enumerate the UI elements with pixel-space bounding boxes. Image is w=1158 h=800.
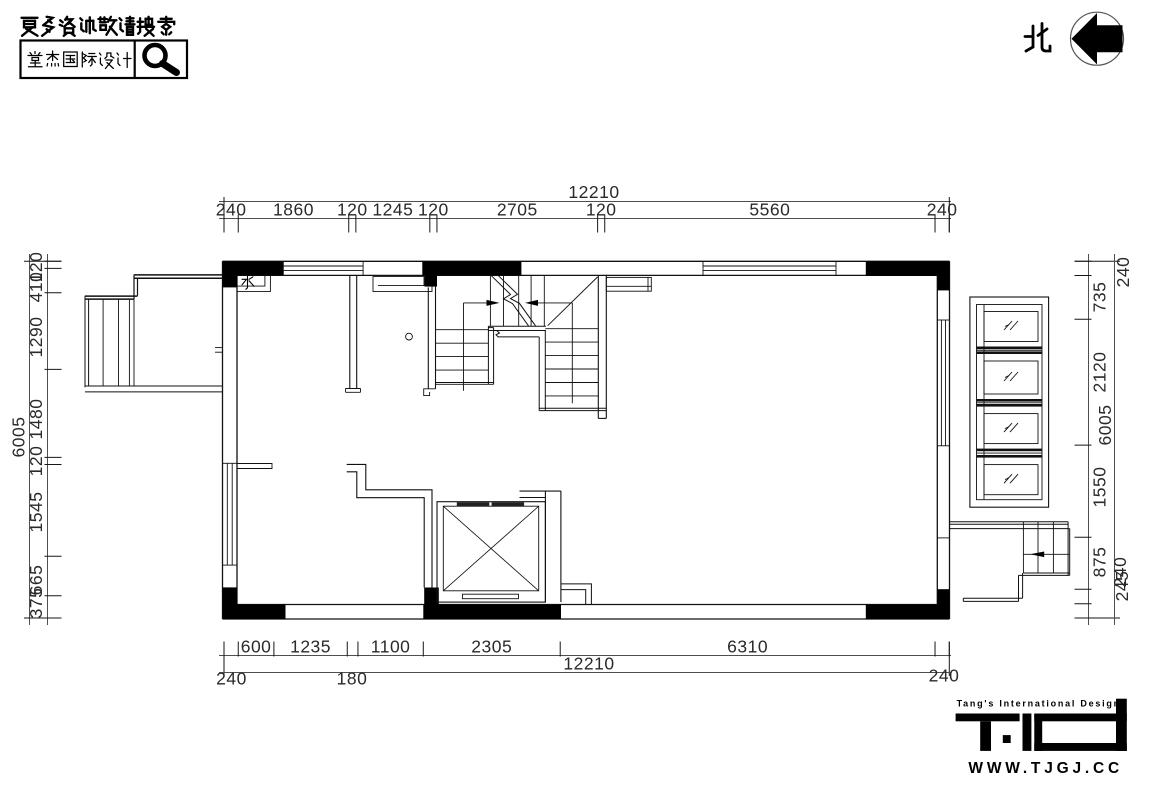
svg-text:875: 875 bbox=[1090, 547, 1110, 578]
svg-text:2705: 2705 bbox=[497, 200, 538, 220]
svg-text:240: 240 bbox=[1113, 257, 1133, 288]
svg-text:120: 120 bbox=[418, 200, 449, 220]
svg-text:1290: 1290 bbox=[26, 317, 46, 358]
svg-text:240: 240 bbox=[927, 200, 958, 220]
svg-text:600: 600 bbox=[241, 637, 272, 657]
svg-text:180: 180 bbox=[337, 669, 368, 689]
svg-text:735: 735 bbox=[1090, 282, 1110, 313]
svg-text:1235: 1235 bbox=[290, 637, 331, 657]
svg-text:WWW.TJGJ.CC: WWW.TJGJ.CC bbox=[968, 760, 1123, 777]
svg-text:120: 120 bbox=[337, 200, 368, 220]
svg-text:240: 240 bbox=[929, 666, 960, 686]
svg-text:5560: 5560 bbox=[749, 200, 790, 220]
svg-text:240: 240 bbox=[216, 200, 247, 220]
svg-text:1245: 1245 bbox=[372, 200, 413, 220]
svg-text:2305: 2305 bbox=[471, 637, 512, 657]
svg-text:1480: 1480 bbox=[26, 399, 46, 440]
svg-text:1100: 1100 bbox=[371, 637, 411, 657]
svg-text:240: 240 bbox=[216, 669, 247, 689]
svg-text:1550: 1550 bbox=[1090, 467, 1110, 508]
svg-text:120: 120 bbox=[26, 446, 46, 477]
svg-text:1545: 1545 bbox=[26, 492, 46, 533]
svg-text:Tang's International Design: Tang's International Design bbox=[957, 699, 1121, 709]
svg-text:2120: 2120 bbox=[1090, 352, 1110, 393]
svg-text:120: 120 bbox=[586, 200, 617, 220]
svg-text:6005: 6005 bbox=[1095, 405, 1115, 446]
svg-text:6310: 6310 bbox=[727, 637, 768, 657]
svg-text:375: 375 bbox=[26, 588, 46, 619]
svg-text:1860: 1860 bbox=[273, 200, 314, 220]
svg-text:245: 245 bbox=[1112, 571, 1132, 602]
svg-text:410: 410 bbox=[26, 272, 46, 303]
svg-text:12210: 12210 bbox=[563, 654, 614, 674]
